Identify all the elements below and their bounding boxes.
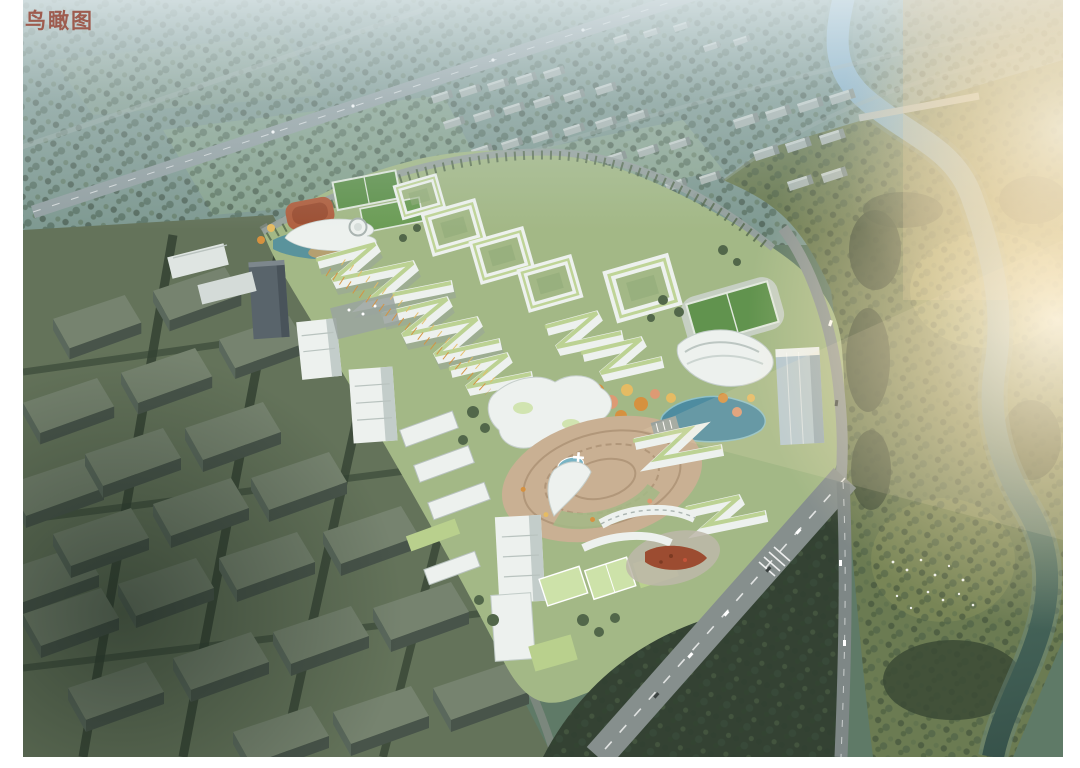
- view-label: 鸟瞰图: [25, 5, 94, 35]
- page: 鸟瞰图: [0, 0, 1080, 768]
- aerial-scene-svg: [23, 0, 1063, 757]
- aerial-render: 鸟瞰图: [23, 0, 1063, 757]
